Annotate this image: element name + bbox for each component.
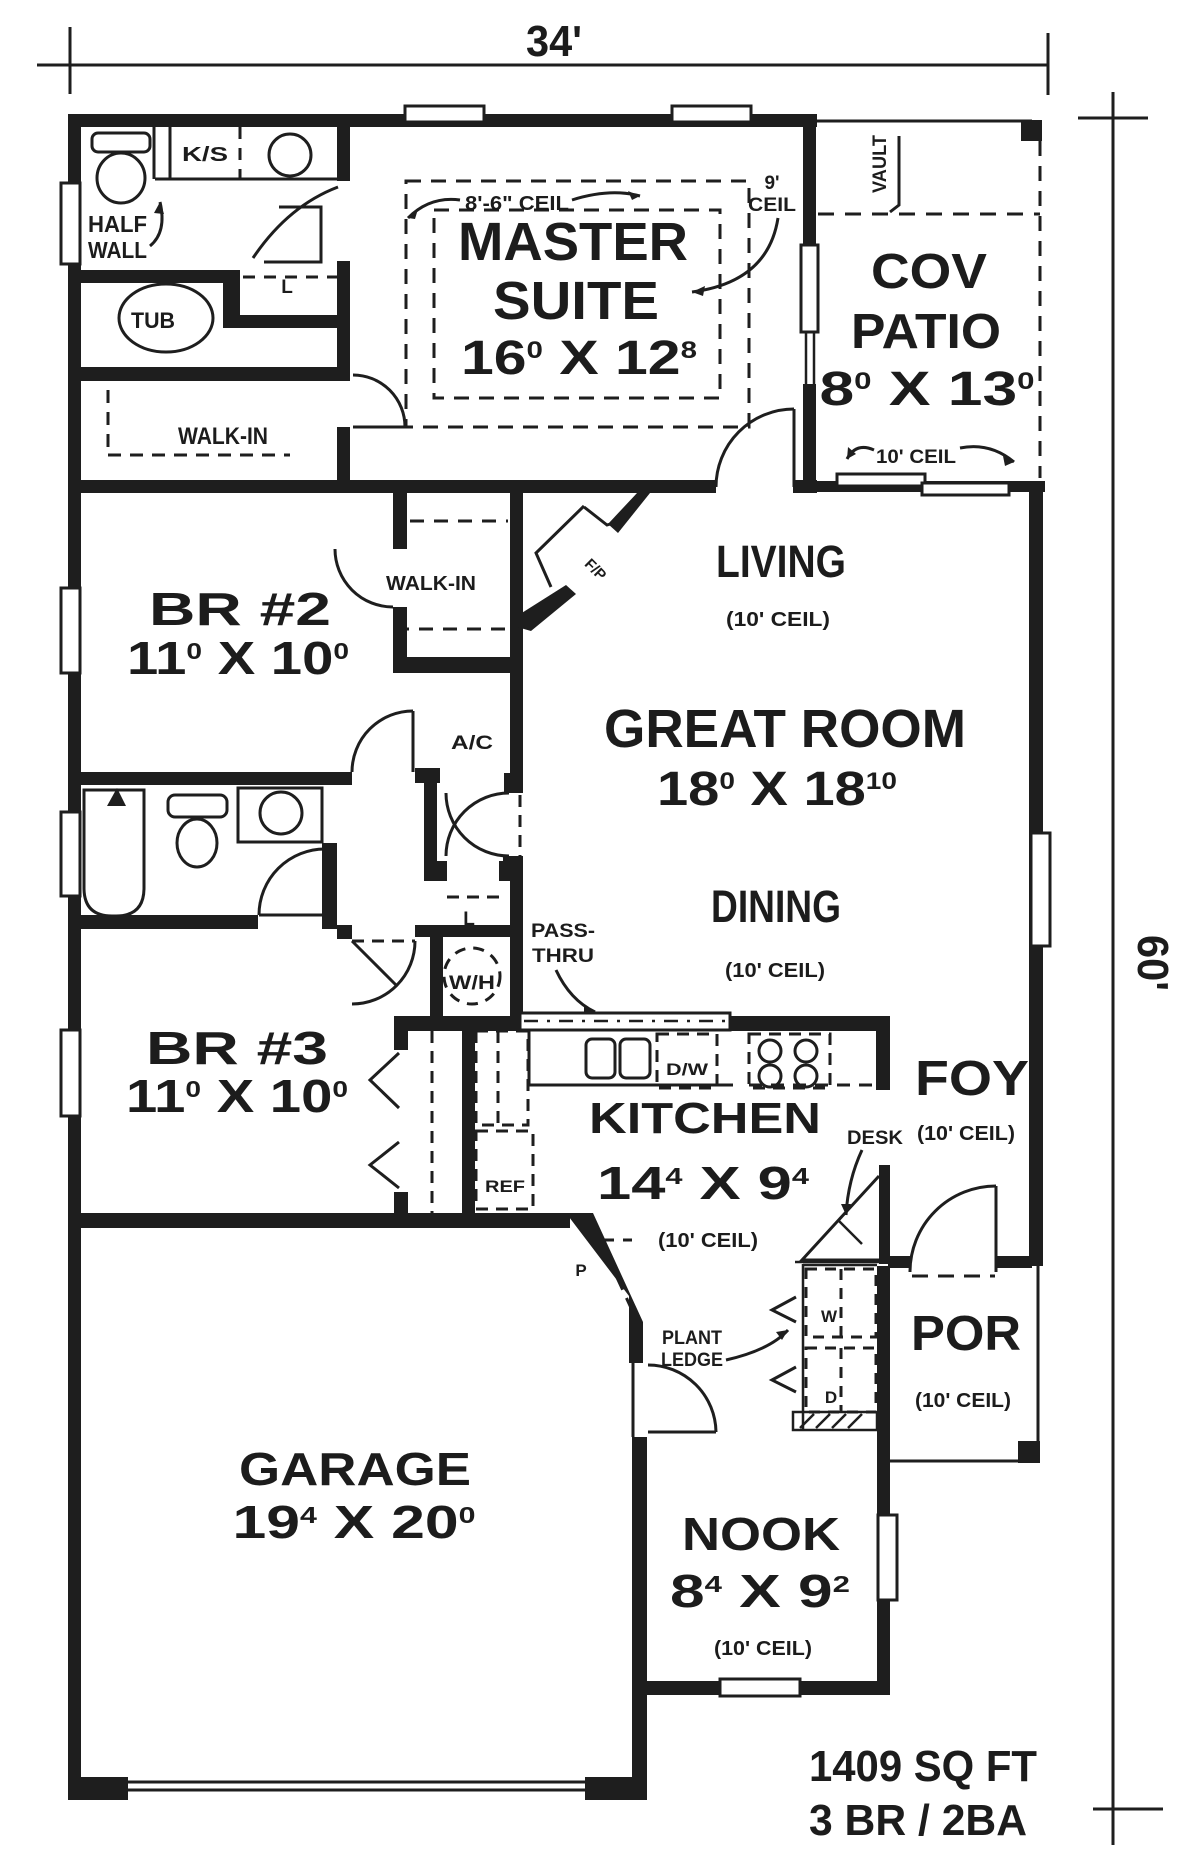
svg-text:PATIO: PATIO [851, 305, 1001, 359]
svg-text:PASS-: PASS- [531, 921, 595, 942]
svg-text:160 X 128: 160 X 128 [461, 332, 697, 385]
svg-text:10' CEIL: 10' CEIL [876, 447, 956, 468]
svg-text:DESK: DESK [847, 1128, 903, 1149]
svg-text:34': 34' [526, 17, 582, 66]
svg-text:W/H: W/H [449, 973, 495, 994]
svg-text:144 X 94: 144 X 94 [597, 1157, 809, 1209]
svg-text:BR #2: BR #2 [149, 583, 331, 635]
svg-text:SUITE: SUITE [493, 271, 659, 331]
svg-text:VAULT: VAULT [870, 135, 891, 193]
svg-text:DINING: DINING [711, 881, 841, 932]
svg-text:194 X 200: 194 X 200 [233, 1496, 476, 1548]
svg-text:CEIL: CEIL [748, 195, 796, 216]
svg-text:(10' CEIL): (10' CEIL) [658, 1230, 758, 1252]
svg-text:(10' CEIL): (10' CEIL) [726, 609, 830, 631]
svg-text:REF: REF [485, 1177, 525, 1196]
svg-text:(10' CEIL): (10' CEIL) [725, 960, 825, 982]
svg-text:MASTER: MASTER [458, 212, 688, 272]
svg-text:180 X 1810: 180 X 1810 [657, 763, 897, 816]
svg-text:PLANT: PLANT [662, 1328, 722, 1349]
svg-text:110 X 100: 110 X 100 [126, 1070, 348, 1122]
svg-text:WALL: WALL [88, 237, 147, 263]
svg-text:KITCHEN: KITCHEN [589, 1094, 821, 1143]
svg-text:D/W: D/W [666, 1060, 709, 1079]
svg-text:BR #3: BR #3 [146, 1022, 328, 1074]
svg-text:WALK-IN: WALK-IN [386, 573, 476, 595]
svg-text:GARAGE: GARAGE [239, 1443, 471, 1495]
svg-text:60': 60' [1128, 935, 1177, 991]
svg-text:TUB: TUB [131, 308, 175, 333]
svg-text:110 X 100: 110 X 100 [127, 632, 349, 684]
svg-text:THRU: THRU [532, 946, 594, 967]
svg-text:D: D [825, 1388, 837, 1407]
svg-text:3 BR / 2BA: 3 BR / 2BA [809, 1796, 1027, 1845]
svg-text:W: W [821, 1307, 838, 1326]
svg-text:(10' CEIL): (10' CEIL) [915, 1390, 1011, 1412]
svg-text:80 X 130: 80 X 130 [820, 363, 1035, 416]
svg-text:LIVING: LIVING [716, 536, 846, 587]
svg-text:FOY: FOY [915, 1052, 1029, 1106]
svg-text:1409 SQ FT: 1409 SQ FT [809, 1742, 1037, 1791]
svg-text:(10' CEIL): (10' CEIL) [917, 1123, 1015, 1145]
svg-text:9': 9' [764, 173, 779, 194]
svg-text:(10' CEIL): (10' CEIL) [714, 1638, 812, 1660]
svg-text:COV: COV [871, 245, 987, 299]
svg-text:WALK-IN: WALK-IN [178, 423, 268, 450]
svg-text:LEDGE: LEDGE [661, 1350, 723, 1371]
svg-text:K/S: K/S [182, 144, 228, 166]
svg-text:P: P [575, 1261, 586, 1280]
svg-text:L: L [281, 277, 293, 298]
svg-text:HALF: HALF [88, 211, 147, 237]
svg-text:POR: POR [911, 1307, 1021, 1361]
svg-text:GREAT ROOM: GREAT ROOM [604, 699, 966, 759]
svg-text:NOOK: NOOK [682, 1508, 840, 1560]
svg-text:84 X 92: 84 X 92 [670, 1565, 850, 1617]
svg-text:A/C: A/C [451, 733, 493, 754]
